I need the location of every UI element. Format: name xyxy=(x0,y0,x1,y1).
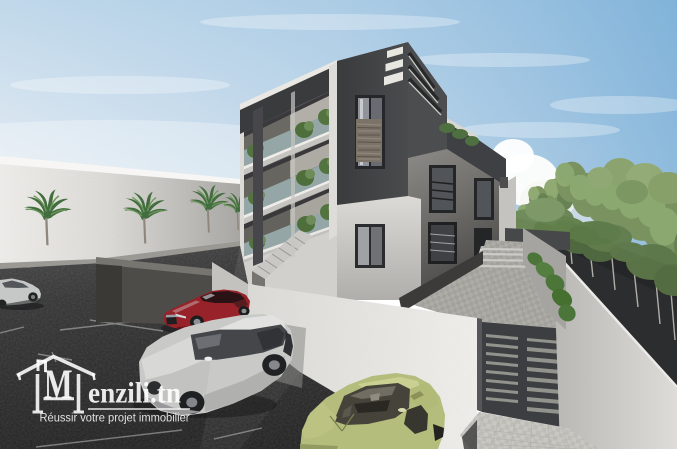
svg-text:enzili.tn: enzili.tn xyxy=(88,377,181,410)
svg-text:M: M xyxy=(44,361,73,408)
svg-text:Réussir votre projet immobilie: Réussir votre projet immobilier xyxy=(40,413,190,425)
